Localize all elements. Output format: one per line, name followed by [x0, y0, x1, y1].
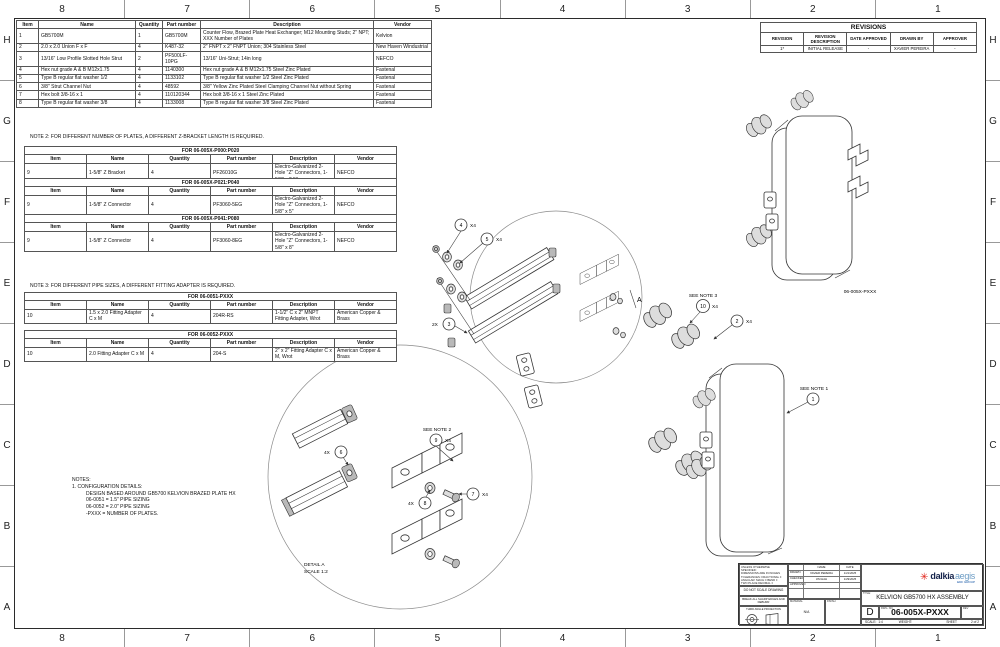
table-title: FOR 06-005X-P041:P080 — [25, 215, 397, 223]
sheet-label: SHEET — [946, 621, 957, 625]
material-value: N/A — [789, 600, 824, 625]
svg-text:X4: X4 — [482, 492, 488, 498]
table-row: 313/16" Low Profile Slotted Hole Strut2P… — [17, 52, 432, 67]
bom-table-p041-p080: FOR 06-005X-P041:P080ItemNameQuantityPar… — [24, 214, 397, 252]
column-header: Item — [25, 223, 87, 231]
table-cell: GB5700M — [163, 29, 201, 44]
table-cell: 2" x 2" Fitting Adapter C x M, Wrot — [273, 347, 335, 362]
balloon-2: 2 X4 — [714, 315, 752, 339]
table-cell: - — [847, 45, 890, 52]
table-cell: 6 — [17, 83, 39, 91]
table-cell: Hex bolt 3/8-16 x 1 Steel Zinc Plated — [201, 91, 374, 99]
table-cell: New Haven Windustrial — [374, 43, 432, 51]
size-cell: D — [861, 606, 879, 619]
table-cell: PF3060-8EG — [211, 231, 273, 252]
name-column-header: NAME — [803, 565, 839, 570]
table-row: 91-5/8" Z Connector4PF3060-8EGElectro-Ga… — [25, 231, 397, 252]
rev-label: REV — [963, 608, 968, 611]
notes-block: NOTES: 1. CONFIGURATION DETAILS: DESIGN … — [72, 477, 236, 518]
table-cell: 4 — [136, 91, 163, 99]
table-cell: Electro-Galvanized 2-Hole "Z" Connectors… — [273, 231, 335, 252]
table-cell: Type B regular flat washer 1/2 — [39, 74, 136, 82]
table-cell: GB5700M — [39, 29, 136, 44]
table-cell: Fastenal — [374, 99, 432, 107]
svg-text:1: 1 — [812, 397, 815, 403]
svg-text:X4: X4 — [496, 237, 502, 243]
table-cell: INITIAL RELEASE — [804, 45, 847, 52]
table-cell: Counter Flow, Brazed Plate Heat Exchange… — [201, 29, 374, 44]
table-cell: 5 — [17, 74, 39, 82]
table-cell: Fastenal — [374, 83, 432, 91]
column-header: Item — [25, 187, 87, 195]
drawing-title: KELVION GB5700 HX ASSEMBLY — [862, 592, 983, 605]
approved-date — [839, 583, 860, 588]
table-cell: 1 — [17, 29, 39, 44]
column-header: Quantity — [136, 21, 163, 29]
title-block: UNLESS OTHERWISE SPECIFIED: DIMENSIONS A… — [738, 563, 983, 625]
svg-text:2: 2 — [736, 319, 739, 325]
z-bracket — [392, 433, 462, 488]
balloon-1: SEE NOTE 1 1 — [787, 386, 828, 413]
table-cell: 9 — [25, 195, 87, 216]
approved-label: APPROVED — [789, 583, 803, 588]
table-cell: 204R-RS — [211, 309, 273, 324]
sheet-value: 2 of 2 — [971, 621, 979, 625]
table-cell: PF500LF-10PG — [163, 52, 201, 67]
svg-text:SEE NOTE 1: SEE NOTE 1 — [800, 386, 829, 392]
header-row: ItemNameQuantityPart numberDescriptionVe… — [17, 21, 432, 29]
title-cell: TITLE: KELVION GB5700 HX ASSEMBLY — [861, 591, 984, 606]
column-header: Name — [39, 21, 136, 29]
header-row: REVISIONREVISION DESCRIPTIONDATE APPROVE… — [761, 33, 977, 46]
header-row: ItemNameQuantityPart numberDescriptionVe… — [25, 187, 397, 195]
detail-a-title: DETAIL A — [304, 562, 325, 568]
tolerance-notes: UNLESS OTHERWISE SPECIFIED: DIMENSIONS A… — [739, 564, 788, 586]
notes-line: 06-0051 = 1.5" PIPE SIZING — [72, 497, 236, 504]
balloon-5: 5 X4 — [460, 233, 502, 263]
finish-label: FINISH — [827, 601, 836, 604]
table-cell: 2" FNPT x 2" FNPT Union; 304 Stainless S… — [201, 43, 374, 51]
table-row: 1GB5700M1GB5700MCounter Flow, Brazed Pla… — [17, 29, 432, 44]
balloon-4: 4 X4 — [447, 219, 476, 253]
table-cell: Fastenal — [374, 91, 432, 99]
table-cell: K487-32 — [163, 43, 201, 51]
clamp-bracket — [524, 385, 543, 409]
header-row: ItemNameQuantityPart numberDescriptionVe… — [25, 301, 397, 309]
table-row: 22.0 x 2.0 Union F x F4K487-322" FNPT x … — [17, 43, 432, 51]
column-header: Part number — [211, 223, 273, 231]
column-header: DRAWN BY — [890, 33, 933, 46]
column-header: Description — [273, 301, 335, 309]
detail-a-letter: A — [637, 297, 642, 304]
balloon-7: 7 X4 — [459, 488, 488, 500]
z-bracket — [580, 254, 619, 284]
table-cell: 13/16" Low Profile Slotted Hole Strut — [39, 52, 136, 67]
column-header: Part number — [163, 21, 201, 29]
dwg-no-cell: DWG. NO. 06-005X-PXXX — [879, 606, 961, 619]
table-cell: 2 — [136, 52, 163, 67]
revisions-table: REVISIONSREVISIONREVISION DESCRIPTIONDAT… — [760, 22, 977, 53]
svg-text:X4: X4 — [746, 319, 752, 325]
table-cell: American Copper & Brass — [335, 309, 397, 324]
table-cell: 3 — [17, 52, 39, 67]
table-cell: 1133102 — [163, 74, 201, 82]
column-header: REVISION DESCRIPTION — [804, 33, 847, 46]
column-header: Item — [25, 339, 87, 347]
table-cell: Fastenal — [374, 74, 432, 82]
column-header: Description — [273, 223, 335, 231]
table-row: 91-5/8" Z Connector4PF3060-5EGElectro-Ga… — [25, 195, 397, 216]
svg-text:9: 9 — [435, 438, 438, 444]
detail-a-scale: SCALE 1:2 — [304, 569, 328, 575]
table-cell: Type B regular flat washer 1/2 Steel Zin… — [201, 74, 374, 82]
svg-text:X4: X4 — [712, 304, 718, 310]
table-cell: 204-S — [211, 347, 273, 362]
column-header: Quantity — [149, 155, 211, 163]
column-header: Name — [87, 301, 149, 309]
column-header: Vendor — [335, 339, 397, 347]
column-header: REVISION — [761, 33, 804, 46]
column-header: Item — [25, 155, 87, 163]
table-cell: 1 — [136, 29, 163, 44]
dwg-no-label: DWG. NO. — [881, 608, 893, 611]
bom-table-06-0051: FOR 06-0051-PXXXItemNameQuantityPart num… — [24, 292, 397, 324]
column-header: Name — [87, 339, 149, 347]
date-column-header: DATE — [839, 565, 860, 570]
table-cell: Type B regular flat washer 3/8 — [39, 99, 136, 107]
table-row: 1*INITIAL RELEASE-XAVIER PEREIRA- — [761, 45, 977, 52]
table-row: 5Type B regular flat washer 1/241133102T… — [17, 74, 432, 82]
logo-dalkia-text: dalkia — [930, 571, 954, 581]
header-row: ItemNameQuantityPart numberDescriptionVe… — [25, 223, 397, 231]
svg-text:5: 5 — [486, 237, 489, 243]
table-cell: 48592 — [163, 83, 201, 91]
notes-line: 1. CONFIGURATION DETAILS: — [72, 484, 236, 491]
heat-exchanger-plate — [683, 364, 784, 556]
union-fitting — [645, 424, 680, 456]
table-cell: 10 — [25, 309, 87, 324]
assembly-part-number-label: 06-005X-PXXX — [844, 289, 877, 295]
column-header: Description — [273, 187, 335, 195]
notes-line: 06-0052 = 2.0" PIPE SIZING — [72, 504, 236, 511]
column-header: Quantity — [149, 339, 211, 347]
logo-cell: ✳ dalkia aegis EDF GROUP — [861, 564, 984, 591]
clamp-bracket — [516, 353, 535, 377]
column-header: Name — [87, 223, 149, 231]
table-cell: 2.0 Fitting Adapter C x M — [87, 347, 149, 362]
table-cell: - — [933, 45, 976, 52]
column-header: Item — [17, 21, 39, 29]
title-label: TITLE: — [863, 593, 871, 596]
union-fitting — [640, 299, 675, 331]
table-cell: 4 — [17, 66, 39, 74]
table-cell: Hex bolt 3/8-16 x 1 — [39, 91, 136, 99]
table-cell: 1.5 x 2.0 Fitting Adapter C x M — [87, 309, 149, 324]
table-cell: 7 — [17, 91, 39, 99]
table-cell: 4 — [149, 231, 211, 252]
svg-text:8: 8 — [424, 501, 427, 507]
column-header: Vendor — [335, 155, 397, 163]
table-cell: 8 — [17, 99, 39, 107]
header-row: ItemNameQuantityPart numberDescriptionVe… — [25, 339, 397, 347]
do-not-scale-note: DO NOT SCALE DRAWING — [739, 586, 788, 596]
weight-label: WEIGHT: — [899, 621, 912, 625]
table-cell: PF3060-5EG — [211, 195, 273, 216]
column-header: Name — [87, 187, 149, 195]
column-header: Item — [25, 301, 87, 309]
table-title: FOR 06-005X-P000:P020 — [25, 147, 397, 155]
column-header: Part number — [211, 301, 273, 309]
table-cell: Fastenal — [374, 66, 432, 74]
deburr-note: BREAK ALL SHARP EDGES AND DEBURR — [739, 596, 788, 606]
third-angle-projection-icon — [742, 613, 786, 626]
checked-date: 1/29/2025 — [839, 577, 860, 582]
finish-cell: FINISH — [825, 599, 861, 626]
column-header: Description — [201, 21, 374, 29]
table-cell: 10 — [25, 347, 87, 362]
svg-text:X4: X4 — [445, 438, 451, 444]
signature-grid: NAME DATE DRAWN XAVIER PEREIRA 1/21/2025… — [788, 564, 861, 599]
svg-text:4X: 4X — [324, 450, 331, 456]
table-cell: 4 — [136, 74, 163, 82]
note-2-text: NOTE 2: FOR DIFFERENT NUMBER OF PLATES, … — [30, 134, 264, 140]
column-header: Part number — [211, 339, 273, 347]
column-header: Vendor — [335, 223, 397, 231]
svg-text:4: 4 — [460, 223, 463, 229]
table-row: 101.5 x 2.0 Fitting Adapter C x M4204R-R… — [25, 309, 397, 324]
table-cell: Electro-Galvanized 2-Hole "Z" Connectors… — [273, 195, 335, 216]
table-cell: 4 — [149, 309, 211, 324]
dalkia-star-icon: ✳ — [920, 572, 928, 584]
column-header: Vendor — [374, 21, 432, 29]
column-header: Name — [87, 155, 149, 163]
table-cell: 4 — [149, 195, 211, 216]
svg-text:SEE NOTE 3: SEE NOTE 3 — [689, 293, 718, 299]
table-row: 102.0 Fitting Adapter C x M4204-S2" x 2"… — [25, 347, 397, 362]
table-title: FOR 06-0051-PXXX — [25, 293, 397, 301]
table-cell: 2.0 x 2.0 Union F x F — [39, 43, 136, 51]
projection-cell: THIRD ANGLE PROJECTION — [739, 606, 788, 626]
notes-line: DESIGN BASED AROUND GB5700 KELVION BRAZE… — [72, 491, 236, 498]
approved-name — [803, 583, 839, 588]
heat-exchanger-assembled — [743, 87, 868, 280]
table-cell: Hex nut grade A & B M12x1.75 — [39, 66, 136, 74]
column-header: Quantity — [149, 223, 211, 231]
scale-value: 1:4 — [878, 621, 882, 625]
column-header: DATE APPROVED — [847, 33, 890, 46]
note-3-text: NOTE 3: FOR DIFFERENT PIPE SIZES, A DIFF… — [30, 283, 235, 289]
table-title: REVISIONS — [761, 23, 977, 33]
column-header: Part number — [211, 187, 273, 195]
bom-table-main: ItemNameQuantityPart numberDescriptionVe… — [16, 20, 432, 108]
table-cell: 1-5/8" Z Connector — [87, 231, 149, 252]
svg-text:4X: 4X — [408, 501, 415, 507]
table-cell: 110120344 — [163, 91, 201, 99]
drawn-date: 1/21/2025 — [839, 571, 860, 576]
column-header: Part number — [211, 155, 273, 163]
balloon-10: SEE NOTE 3 10 X4 — [689, 293, 718, 323]
column-header: Quantity — [149, 301, 211, 309]
material-cell: MATERIAL N/A — [788, 599, 825, 626]
table-cell: 1-1/2" C x 2" MNPT Fitting Adapter, Wrot — [273, 309, 335, 324]
table-title: FOR 06-0052-PXXX — [25, 331, 397, 339]
bom-table-p021-p040: FOR 06-005X-P021:P040ItemNameQuantityPar… — [24, 178, 397, 216]
table-row: 7Hex bolt 3/8-16 x 14110120344Hex bolt 3… — [17, 91, 432, 99]
header-row: ItemNameQuantityPart numberDescriptionVe… — [25, 155, 397, 163]
union-fitting — [668, 320, 703, 352]
table-cell: 9 — [25, 231, 87, 252]
scale-label: SCALE: — [865, 621, 876, 625]
table-cell: NEFCO — [335, 195, 397, 216]
column-header: APPROVER — [933, 33, 976, 46]
table-cell: 1140300 — [163, 66, 201, 74]
table-cell: 1-5/8" Z Connector — [87, 195, 149, 216]
table-cell: 2 — [17, 43, 39, 51]
bom-table-06-0052: FOR 06-0052-PXXXItemNameQuantityPart num… — [24, 330, 397, 362]
column-header: Vendor — [335, 187, 397, 195]
svg-text:3: 3 — [448, 322, 451, 328]
table-cell: 4 — [136, 66, 163, 74]
column-header: Description — [273, 339, 335, 347]
svg-text:SEE NOTE 2: SEE NOTE 2 — [423, 427, 452, 433]
svg-text:7: 7 — [472, 492, 475, 498]
table-cell: 3/8" Yellow Zinc Plated Steel Clamping C… — [201, 83, 374, 91]
column-header: Vendor — [335, 301, 397, 309]
column-header: Quantity — [149, 187, 211, 195]
table-cell: XAVIER PEREIRA — [890, 45, 933, 52]
svg-text:2X: 2X — [432, 322, 439, 328]
table-title: FOR 06-005X-P021:P040 — [25, 179, 397, 187]
table-cell: 3/8" Strut Channel Nut — [39, 83, 136, 91]
table-cell: Hex nut grade A & B M12x1.75 Steel Zinc … — [201, 66, 374, 74]
table-cell: 1133008 — [163, 99, 201, 107]
balloon-3: 3 2X — [432, 318, 467, 333]
table-cell: Type B regular flat washer 3/8 Steel Zin… — [201, 99, 374, 107]
rev-cell: REV — [961, 606, 984, 619]
table-cell: 1* — [761, 45, 804, 52]
notes-line: NOTES: — [72, 477, 236, 484]
balloon-6: 6 4X — [324, 446, 348, 465]
drawing-sheet: 87654321 87654321 HGFEDCBA HGFEDCBA A — [0, 0, 1000, 647]
table-cell: 4 — [136, 43, 163, 51]
logo-edf-text: EDF GROUP — [930, 581, 975, 584]
table-cell: 4 — [136, 99, 163, 107]
notes-line: -PXXX = NUMBER OF PLATES. — [72, 511, 236, 518]
svg-text:6: 6 — [340, 450, 343, 456]
material-label: MATERIAL — [790, 601, 803, 604]
table-cell: Kelvion — [374, 29, 432, 44]
table-row: 63/8" Strut Channel Nut4485923/8" Yellow… — [17, 83, 432, 91]
table-cell: NEFCO — [374, 52, 432, 67]
svg-text:X4: X4 — [470, 223, 476, 229]
table-cell: 13/16" Uni-Strut; 14in long — [201, 52, 374, 67]
table-cell: 4 — [136, 83, 163, 91]
table-row: 4Hex nut grade A & B M12x1.7541140300Hex… — [17, 66, 432, 74]
drawn-name: XAVIER PEREIRA — [803, 571, 839, 576]
table-row: 8Type B regular flat washer 3/841133008T… — [17, 99, 432, 107]
svg-text:10: 10 — [700, 304, 706, 310]
scale-strip: SCALE: 1:4 WEIGHT: SHEET 2 of 2 — [861, 619, 984, 626]
checked-name: JIM HAH — [803, 577, 839, 582]
table-cell: NEFCO — [335, 231, 397, 252]
table-cell: 4 — [149, 347, 211, 362]
table-cell: American Copper & Brass — [335, 347, 397, 362]
column-header: Description — [273, 155, 335, 163]
